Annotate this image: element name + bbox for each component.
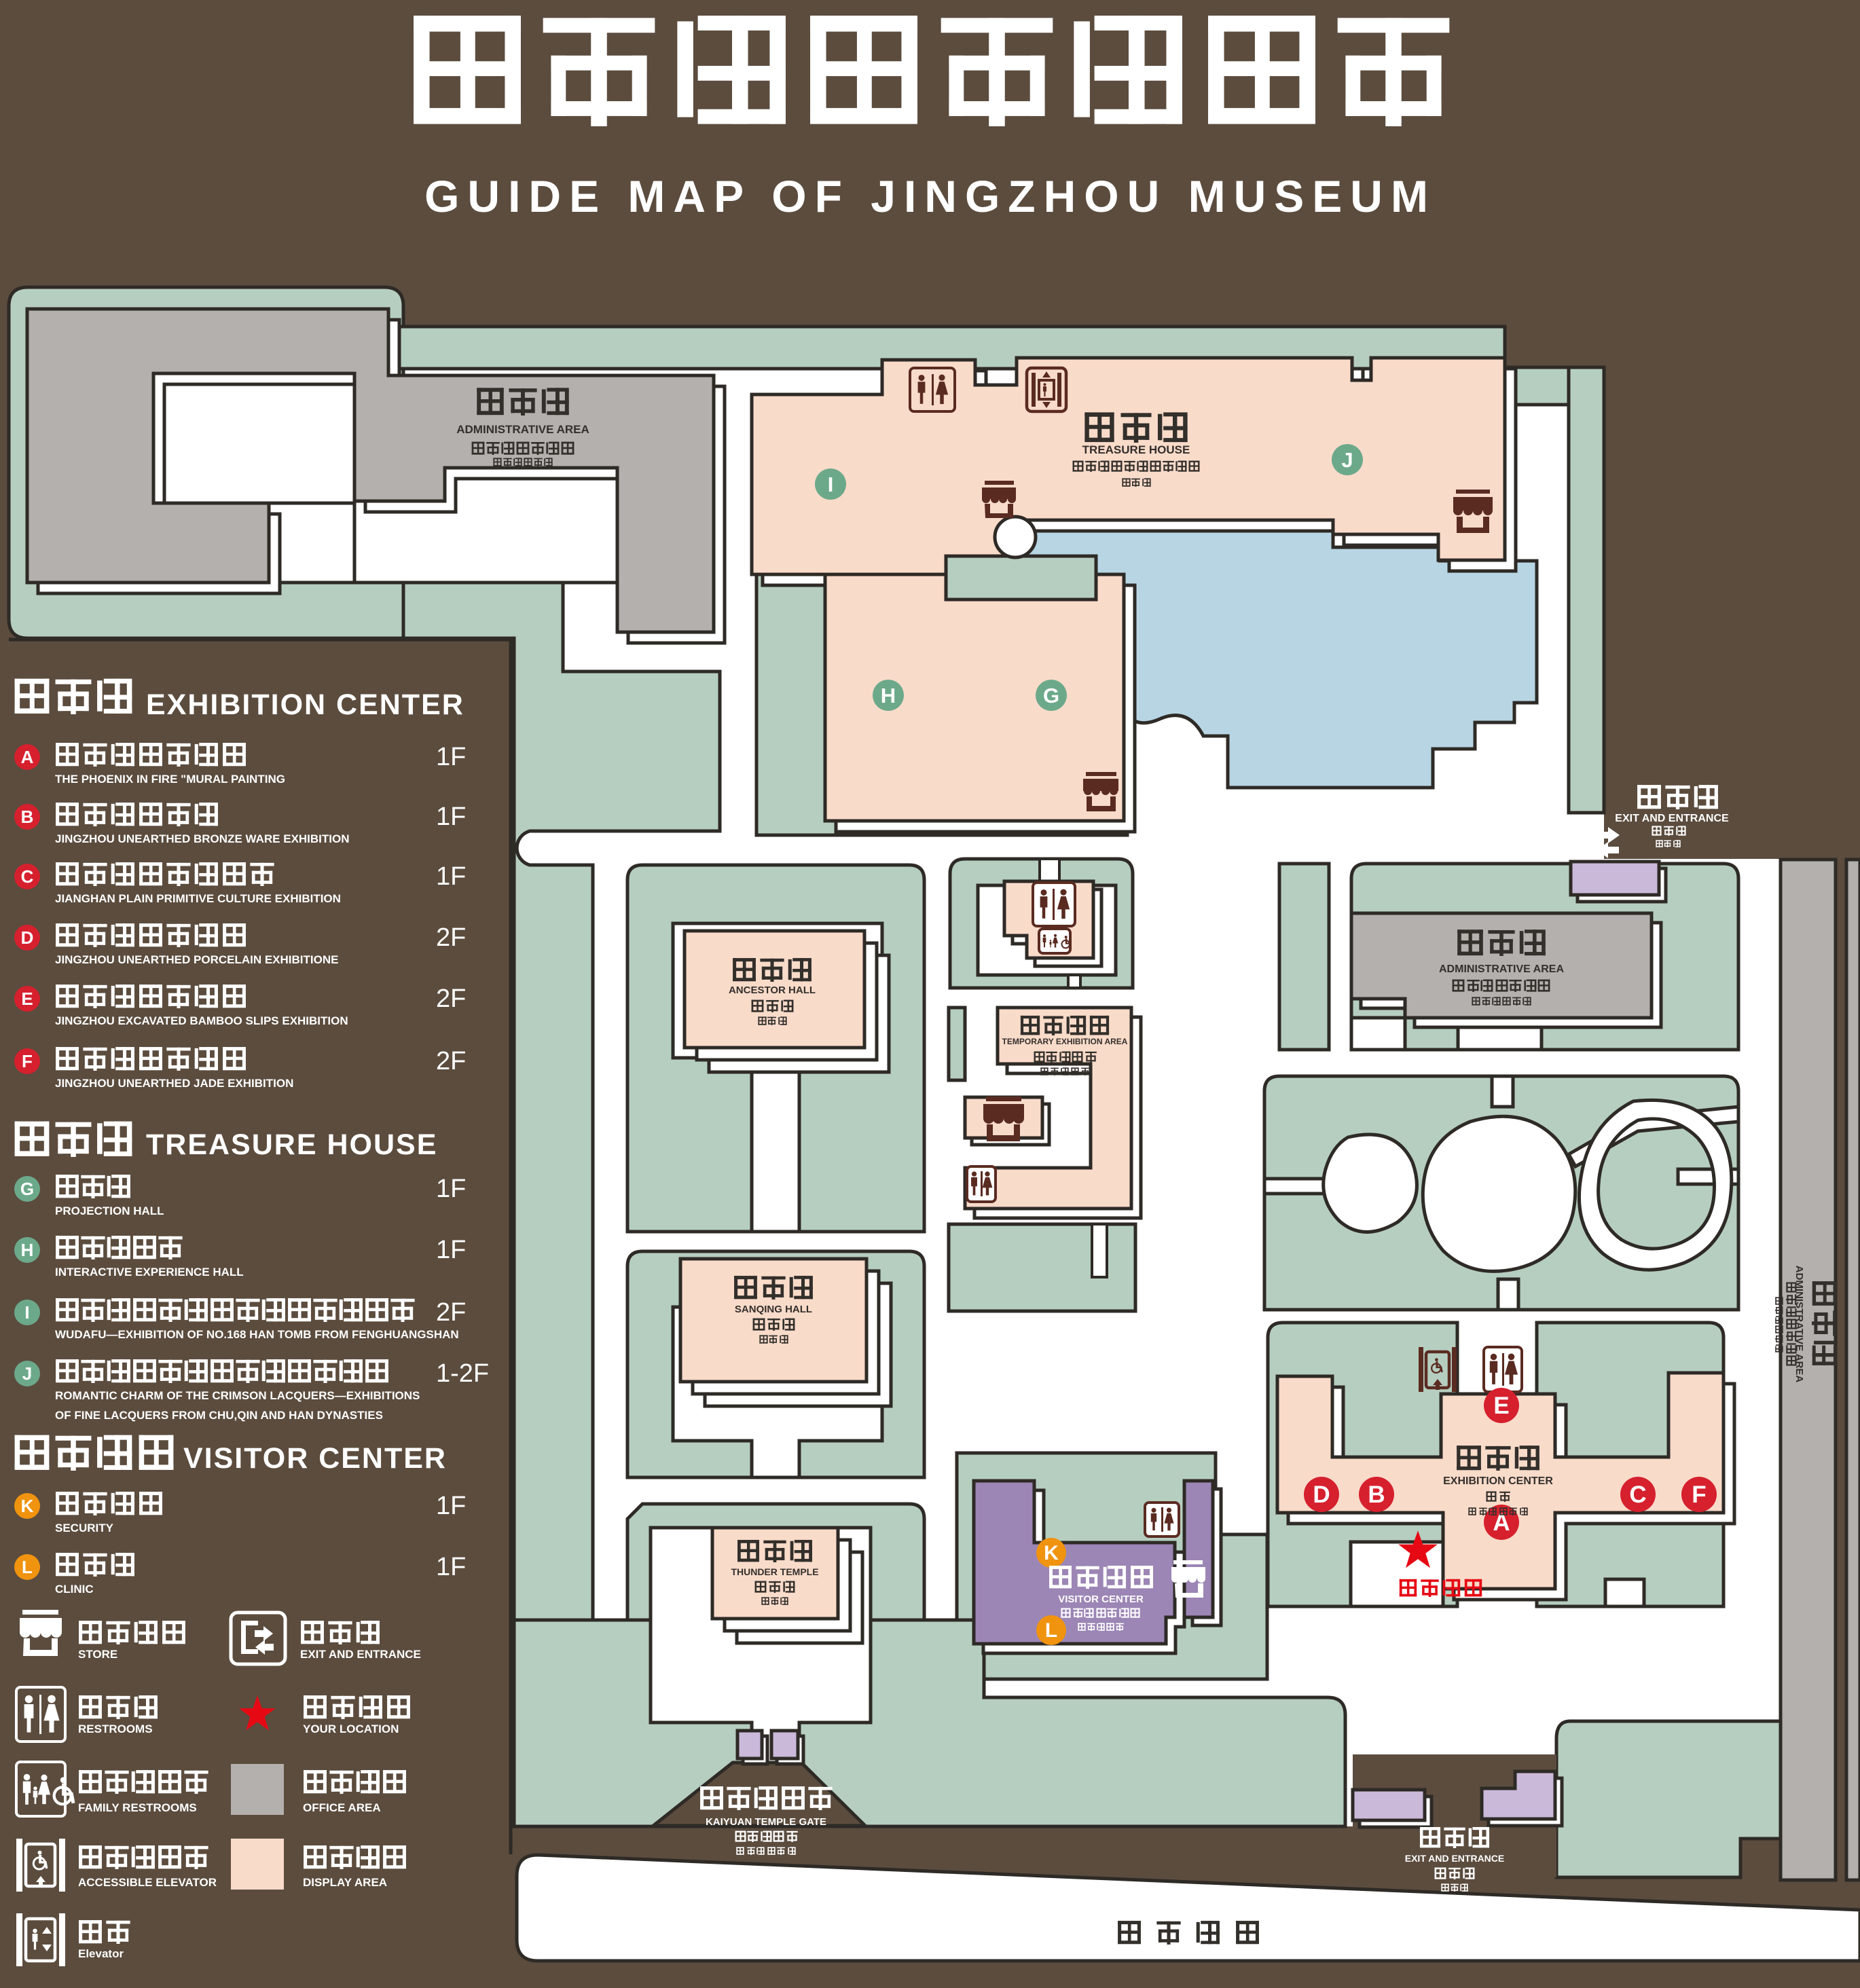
svg-text:EXHIBITION CENTER: EXHIBITION CENTER xyxy=(146,688,464,721)
svg-text:TREASURE HOUSE: TREASURE HOUSE xyxy=(146,1128,437,1161)
svg-text:ADMINISTRATIVE AREA: ADMINISTRATIVE AREA xyxy=(456,423,589,436)
svg-text:1F: 1F xyxy=(436,1236,466,1264)
svg-text:EXIT AND ENTRANCE: EXIT AND ENTRANCE xyxy=(1615,813,1729,824)
svg-text:1F: 1F xyxy=(436,803,466,831)
svg-text:D: D xyxy=(21,927,34,948)
svg-text:2F: 2F xyxy=(436,984,466,1013)
svg-text:YOUR LOCATION: YOUR LOCATION xyxy=(303,1723,399,1735)
svg-text:JINGZHOU EXCAVATED BAMBOO SLIP: JINGZHOU EXCAVATED BAMBOO SLIPS EXHIBITI… xyxy=(55,1014,348,1027)
svg-text:H: H xyxy=(21,1240,34,1260)
svg-text:FAMILY RESTROOMS: FAMILY RESTROOMS xyxy=(78,1801,197,1814)
svg-text:ADMINISTRATIVE AREA: ADMINISTRATIVE AREA xyxy=(1439,963,1564,975)
svg-text:PROJECTION HALL: PROJECTION HALL xyxy=(55,1204,164,1217)
svg-text:ROMANTIC CHARM OF THE CRIMSON: ROMANTIC CHARM OF THE CRIMSON LACQUERS—E… xyxy=(55,1389,420,1402)
svg-text:JINGZHOU UNEARTHED PORCELAIN E: JINGZHOU UNEARTHED PORCELAIN EXHIBITIONE xyxy=(55,953,338,966)
svg-text:1F: 1F xyxy=(436,743,466,771)
svg-text:Elevator: Elevator xyxy=(78,1947,124,1960)
svg-text:F: F xyxy=(1692,1481,1706,1508)
svg-text:A: A xyxy=(21,747,34,767)
svg-text:ANCESTOR HALL: ANCESTOR HALL xyxy=(729,984,816,996)
svg-text:2F: 2F xyxy=(436,1047,466,1075)
svg-text:RESTROOMS: RESTROOMS xyxy=(78,1723,153,1735)
svg-text:2F: 2F xyxy=(436,923,466,952)
svg-text:J: J xyxy=(1341,448,1353,472)
svg-text:ACCESSIBLE ELEVATOR: ACCESSIBLE ELEVATOR xyxy=(78,1876,217,1889)
svg-text:2F: 2F xyxy=(436,1298,466,1327)
svg-text:JIANGHAN PLAIN PRIMITIVE CULTU: JIANGHAN PLAIN PRIMITIVE CULTURE EXHIBIT… xyxy=(55,892,341,905)
svg-text:E: E xyxy=(1493,1393,1509,1419)
svg-text:OF FINE LACQUERS FROM CHU,QIN: OF FINE LACQUERS FROM CHU,QIN AND HAN DY… xyxy=(55,1409,383,1422)
svg-text:1F: 1F xyxy=(436,1553,466,1581)
svg-text:C: C xyxy=(21,866,34,887)
svg-text:THUNDER TEMPLE: THUNDER TEMPLE xyxy=(731,1566,818,1577)
svg-text:G: G xyxy=(20,1179,34,1199)
svg-text:1F: 1F xyxy=(436,1492,466,1520)
svg-text:EXIT AND ENTRANCE: EXIT AND ENTRANCE xyxy=(300,1648,421,1661)
svg-text:TREASURE HOUSE: TREASURE HOUSE xyxy=(1082,443,1190,456)
svg-text:K: K xyxy=(1044,1542,1059,1564)
svg-text:JINGZHOU UNEARTHED JADE EXHIBI: JINGZHOU UNEARTHED JADE EXHIBITION xyxy=(55,1077,293,1090)
svg-text:TEMPORARY EXHIBITION AREA: TEMPORARY EXHIBITION AREA xyxy=(1002,1037,1128,1046)
svg-text:L: L xyxy=(1045,1619,1057,1642)
svg-text:VISITOR CENTER: VISITOR CENTER xyxy=(183,1442,447,1475)
svg-text:EXIT AND ENTRANCE: EXIT AND ENTRANCE xyxy=(1405,1853,1505,1864)
svg-text:1-2F: 1-2F xyxy=(436,1359,489,1388)
svg-text:STORE: STORE xyxy=(78,1648,117,1661)
svg-text:F: F xyxy=(22,1051,33,1071)
svg-text:JINGZHOU UNEARTHED BRONZE WARE: JINGZHOU UNEARTHED BRONZE WARE EXHIBITIO… xyxy=(55,832,350,845)
svg-text:J: J xyxy=(22,1363,32,1384)
svg-text:G: G xyxy=(1043,684,1059,707)
svg-text:EXHIBITION CENTER: EXHIBITION CENTER xyxy=(1443,1475,1553,1487)
svg-text:B: B xyxy=(21,807,34,827)
svg-text:GUIDE MAP OF JINGZHOU MUSEUM: GUIDE MAP OF JINGZHOU MUSEUM xyxy=(424,171,1436,221)
svg-text:OFFICE AREA: OFFICE AREA xyxy=(303,1801,381,1814)
svg-text:SANQING HALL: SANQING HALL xyxy=(735,1304,812,1315)
svg-text:1F: 1F xyxy=(436,1175,466,1203)
svg-text:INTERACTIVE EXPERIENCE HALL: INTERACTIVE EXPERIENCE HALL xyxy=(55,1266,244,1278)
svg-text:I: I xyxy=(828,473,834,496)
svg-text:L: L xyxy=(22,1557,33,1577)
svg-text:VISITOR CENTER: VISITOR CENTER xyxy=(1058,1594,1144,1605)
svg-text:THE PHOENIX IN FIRE "MURAL PAI: THE PHOENIX IN FIRE "MURAL PAINTING xyxy=(55,773,285,786)
svg-text:H: H xyxy=(881,684,896,707)
svg-text:K: K xyxy=(21,1496,34,1516)
svg-text:SECURITY: SECURITY xyxy=(55,1522,114,1534)
svg-text:CLINIC: CLINIC xyxy=(55,1583,94,1596)
svg-text:I: I xyxy=(24,1302,29,1323)
svg-text:B: B xyxy=(1368,1481,1385,1508)
svg-text:DISPLAY AREA: DISPLAY AREA xyxy=(303,1876,387,1889)
svg-text:KAIYUAN TEMPLE GATE: KAIYUAN TEMPLE GATE xyxy=(706,1816,826,1828)
svg-text:1F: 1F xyxy=(436,862,466,891)
svg-text:E: E xyxy=(21,989,33,1009)
svg-text:WUDAFU—EXHIBITION OF NO.168 HA: WUDAFU—EXHIBITION OF NO.168 HAN TOMB FRO… xyxy=(55,1328,459,1341)
svg-text:C: C xyxy=(1629,1481,1646,1508)
svg-text:D: D xyxy=(1313,1481,1330,1508)
